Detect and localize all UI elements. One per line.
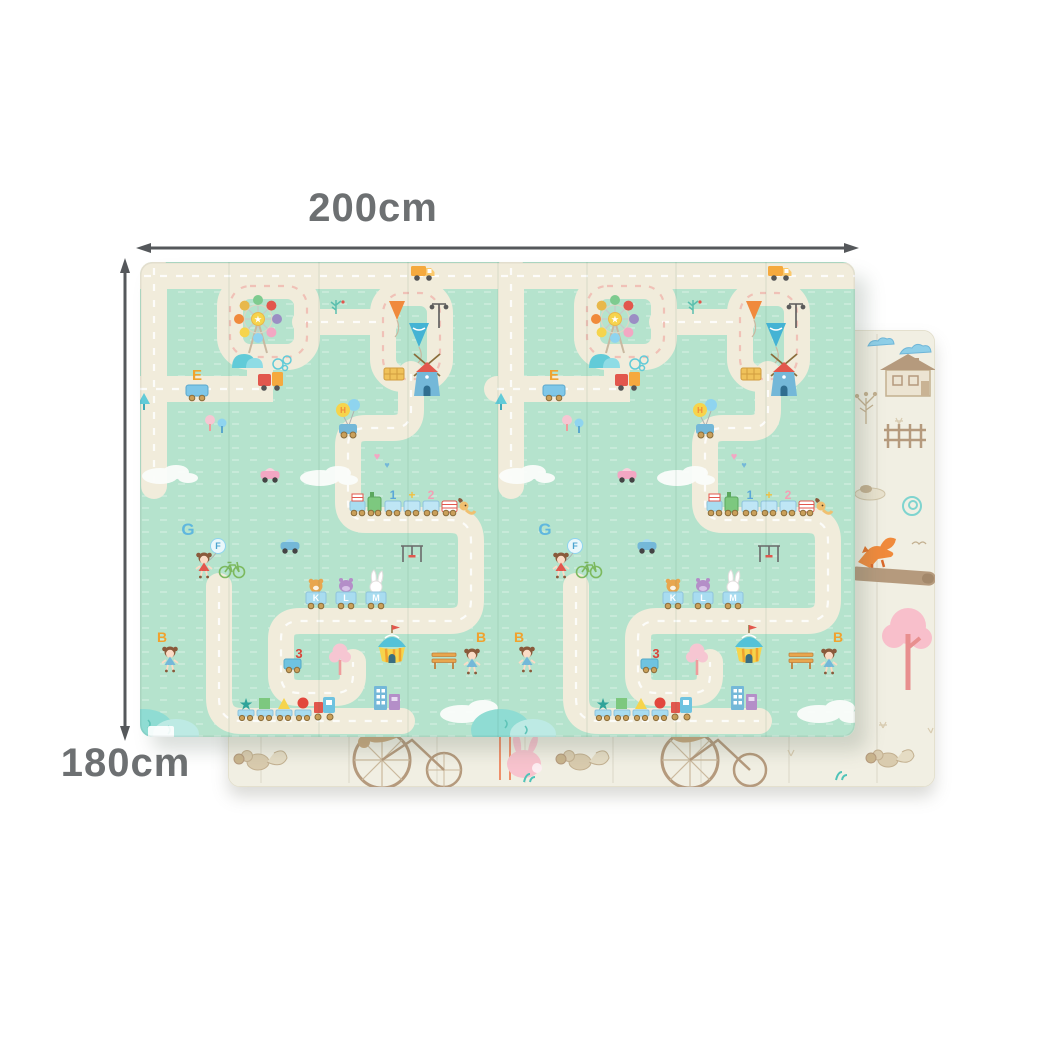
height-dimension-arrow — [117, 258, 133, 741]
mat-label-tag — [148, 726, 174, 737]
height-dimension-label: 180cm — [48, 741, 203, 786]
front-mat: ★ — [140, 262, 855, 737]
width-dimension-arrow — [136, 240, 859, 256]
width-dimension-label: 200cm — [253, 186, 493, 231]
product-image: 200cm 180cm — [0, 0, 1050, 1050]
